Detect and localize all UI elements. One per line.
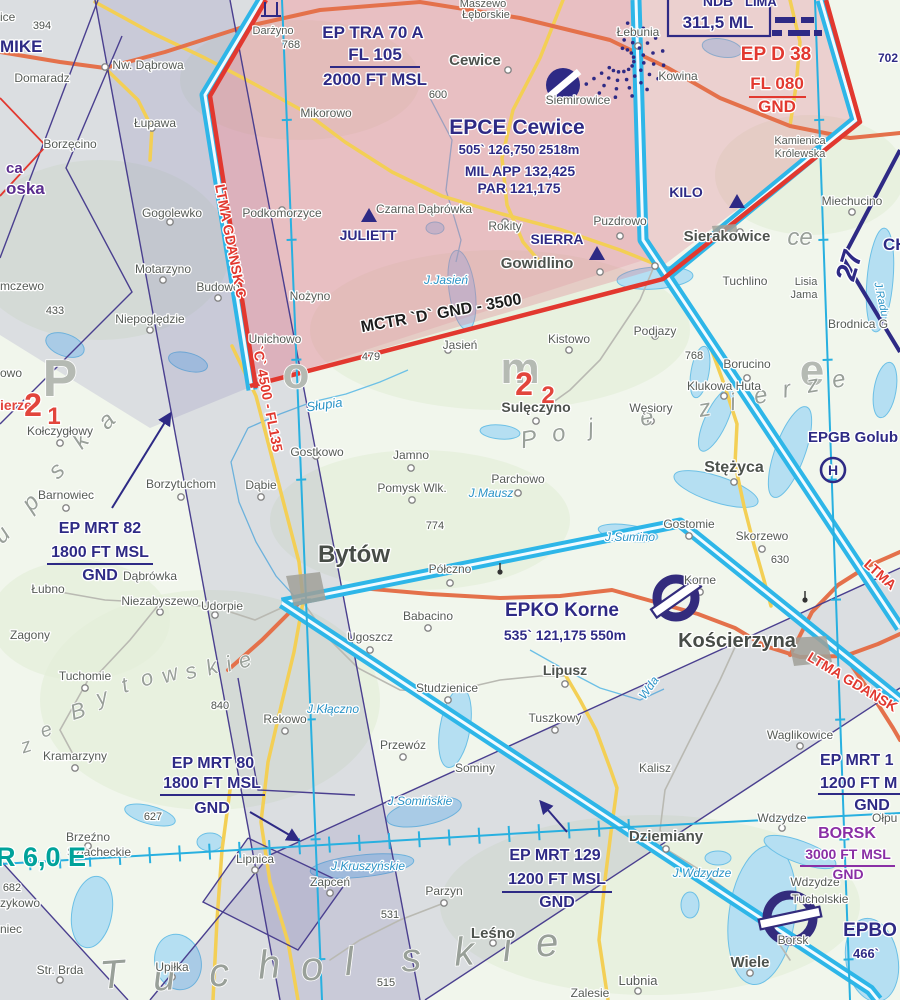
- map-label: j: [583, 414, 597, 442]
- map-label: Półczno: [429, 562, 472, 576]
- map-label: Lipnica: [236, 852, 274, 866]
- morse-dash: [814, 30, 822, 36]
- graticule-tick: [299, 838, 300, 854]
- map-label: Kalisz: [639, 761, 671, 775]
- map-label: Przewóz: [380, 738, 426, 752]
- map-label: EP D 38: [741, 44, 811, 65]
- graticule-tick: [479, 828, 480, 844]
- map-label: Borzytuchom: [146, 477, 216, 491]
- map-label: z: [17, 734, 34, 758]
- map-label: Ugoszcz: [347, 630, 393, 644]
- map-label: 840: [211, 700, 229, 712]
- map-label: o: [550, 419, 568, 448]
- ndb-dot: [630, 51, 634, 55]
- map-label: NDB: [703, 0, 733, 9]
- town-marker: [505, 67, 511, 73]
- map-label: Udorpie: [201, 599, 243, 613]
- map-label: Korne: [684, 573, 716, 587]
- map-label: Parzyn: [425, 884, 462, 898]
- map-label: Kościerzyna: [678, 630, 797, 652]
- town-marker: [409, 497, 415, 503]
- map-label: BORSK: [818, 825, 876, 842]
- ndb-dot: [661, 49, 665, 53]
- map-label: Niezabyszewo: [121, 594, 199, 608]
- ndb-dot: [602, 84, 606, 88]
- map-label: Kistowo: [548, 332, 590, 346]
- ndb-dot: [642, 61, 646, 65]
- map-label: o: [283, 349, 310, 398]
- map-label: s: [43, 457, 71, 485]
- map-label: Pomysk Wlk.: [377, 481, 446, 495]
- ndb-dot: [645, 88, 649, 92]
- map-label: Zapceń: [310, 875, 350, 889]
- map-label: Lipusz: [543, 662, 587, 678]
- map-label: P: [518, 425, 538, 454]
- town-marker: [57, 977, 63, 983]
- map-label: 394: [33, 20, 51, 32]
- ndb-dot: [600, 71, 604, 75]
- ndb-dot: [617, 70, 621, 74]
- map-label: 531: [381, 909, 399, 921]
- map-label: z: [695, 394, 712, 423]
- graticule-tick: [598, 821, 599, 837]
- map-label: Puzdrowo: [593, 214, 647, 228]
- map-label: Dąbie: [245, 478, 277, 492]
- town-marker: [797, 743, 803, 749]
- ndb-dot: [627, 68, 631, 72]
- graticule-tick: [449, 830, 450, 846]
- map-label: Siemirowice: [546, 93, 611, 107]
- ndb-dot: [652, 62, 656, 66]
- map-label: Waglikowice: [767, 728, 834, 742]
- ndb-dot: [646, 41, 650, 45]
- town-marker: [82, 685, 88, 691]
- town-marker: [400, 754, 406, 760]
- map-label: MIKE: [0, 37, 43, 56]
- town-marker: [447, 580, 453, 586]
- map-label: Podjazy: [634, 324, 677, 338]
- town-marker: [63, 505, 69, 511]
- ndb-dot: [662, 63, 666, 67]
- map-label: J.Jasień: [423, 273, 468, 287]
- map-label: 774: [426, 520, 444, 532]
- map-label: 1800 FT MSL: [163, 775, 261, 792]
- town-marker: [849, 209, 855, 215]
- map-label: Dziemiany: [629, 828, 704, 845]
- map-label: 702: [878, 51, 898, 65]
- map-label: Darżyno: [253, 25, 294, 37]
- map-label: FL 080: [750, 74, 804, 93]
- map-label: FL 105: [348, 45, 402, 64]
- graticule-tick: [149, 847, 150, 863]
- ndb-dot: [612, 69, 616, 73]
- town-marker: [552, 727, 558, 733]
- lake: [681, 892, 699, 918]
- map-label: Zalesie: [571, 986, 610, 1000]
- ndb-dot: [628, 86, 632, 90]
- ndb-dot: [607, 76, 611, 80]
- map-label: 466`: [853, 946, 879, 961]
- map-label: SIERRA: [531, 231, 584, 247]
- map-label: niec: [0, 922, 22, 936]
- map-label: mczewo: [0, 279, 44, 293]
- map-label: 433: [46, 305, 64, 317]
- map-label: ce: [787, 224, 812, 251]
- town-marker: [566, 347, 572, 353]
- map-label: oska: [6, 179, 45, 198]
- map-label: Tuchlino: [723, 274, 768, 288]
- map-label: Skorzewo: [736, 529, 789, 543]
- map-label: c: [208, 950, 231, 995]
- town-marker: [635, 988, 641, 994]
- map-label: Domaradz: [14, 71, 69, 85]
- map-label: Lisia: [795, 276, 819, 288]
- town-marker: [367, 647, 373, 653]
- town-marker: [282, 728, 288, 734]
- map-label: Łubno: [31, 582, 65, 596]
- map-label: Bytów: [318, 541, 390, 568]
- map-label: Gowidlino: [501, 255, 574, 272]
- map-label: 1200 FT MSL: [508, 871, 606, 888]
- map-label: Upiłka: [155, 960, 189, 974]
- map-label: Kamienica: [774, 135, 826, 147]
- graticule-tick: [509, 826, 510, 842]
- map-label: 768: [685, 350, 703, 362]
- map-label: 27: [830, 246, 869, 285]
- map-label: 479: [362, 351, 380, 363]
- map-label: EP MRT 1: [820, 752, 894, 769]
- graticule-tick: [389, 833, 390, 849]
- map-label: GND: [539, 894, 575, 911]
- map-label: 600: [429, 89, 447, 101]
- town-marker: [445, 697, 451, 703]
- map-label: Rokity: [488, 219, 521, 233]
- ndb-dot: [631, 41, 635, 45]
- map-label: 2: [24, 387, 42, 423]
- vfr-chart: H PomecePojezierzeupskazeBytowskieTuchol…: [0, 0, 900, 1000]
- ndb-dot: [639, 81, 643, 85]
- graticule-tick: [359, 835, 360, 851]
- map-label: J.Kruszyńskie: [330, 859, 405, 873]
- map-label: Borzęcino: [43, 137, 97, 151]
- town-marker: [663, 846, 669, 852]
- town-marker: [441, 900, 447, 906]
- map-label: 505` 126,750 2518m: [459, 142, 580, 157]
- map-label: Podkomorzyce: [242, 206, 322, 220]
- map-label: 2000 FT MSL: [323, 70, 427, 89]
- map-label: Sominy: [455, 761, 495, 775]
- map-label: u: [0, 520, 16, 549]
- map-label: 535` 121,175 550m: [504, 627, 626, 643]
- map-label: Borucino: [723, 357, 771, 371]
- map-label: Motarzyno: [135, 262, 191, 276]
- map-label: Sierakowice: [684, 228, 771, 245]
- map-label: Królewska: [775, 148, 827, 160]
- town-marker: [779, 825, 785, 831]
- lake: [705, 851, 731, 865]
- map-label: Brodnica G: [828, 317, 888, 331]
- map-label: GND: [758, 97, 796, 116]
- lake: [479, 423, 520, 440]
- map-label: Barnowiec: [38, 488, 94, 502]
- town-marker: [759, 546, 765, 552]
- map-label: GND: [194, 800, 230, 817]
- map-label: KILO: [669, 184, 703, 200]
- ndb-dot: [639, 68, 643, 72]
- map-label: 1800 FT MSL: [51, 544, 149, 561]
- map-label: 2: [515, 366, 533, 402]
- map-label: CH: [883, 235, 900, 254]
- map-label: EP MRT 80: [172, 755, 255, 772]
- town-marker: [408, 465, 414, 471]
- map-label: Rekowo: [263, 712, 307, 726]
- map-label: Tuchomie: [59, 669, 112, 683]
- map-label: Gogolewko: [142, 206, 202, 220]
- town-marker: [102, 64, 108, 70]
- ndb-dot: [621, 46, 625, 50]
- map-label: Węsiory: [629, 401, 672, 415]
- map-label: Stężyca: [704, 459, 764, 476]
- map-label: T: [98, 952, 128, 998]
- ndb-dot: [632, 60, 636, 64]
- map-label: 2: [541, 382, 554, 409]
- map-label: Tuszkowy: [529, 711, 582, 725]
- graticule-tick: [329, 837, 330, 853]
- map-label: 3000 FT MSL: [805, 846, 891, 862]
- town-marker: [721, 393, 727, 399]
- map-label: Jamno: [393, 448, 429, 462]
- ndb-dot: [630, 64, 634, 68]
- graticule-tick: [179, 845, 180, 861]
- map-label: a: [92, 406, 121, 435]
- chart-canvas: H PomecePojezierzeupskazeBytowskieTuchol…: [0, 0, 900, 1000]
- map-label: Gostomie: [663, 517, 715, 531]
- map-label: Jasień: [443, 338, 478, 352]
- map-label: PAR 121,175: [477, 180, 560, 196]
- town-marker: [731, 479, 737, 485]
- map-label: JULIETT: [340, 227, 397, 243]
- ndb-dot: [625, 78, 629, 82]
- map-label: Leśno: [471, 925, 515, 942]
- ndb-dot: [632, 55, 636, 59]
- map-label: owo: [0, 366, 22, 380]
- map-label: EP TRA 70 A: [322, 23, 423, 42]
- map-label: 682: [3, 882, 21, 894]
- map-label: Gostkowo: [290, 445, 344, 459]
- map-label: e: [534, 920, 559, 965]
- map-label: Jama: [791, 289, 819, 301]
- map-label: 768: [282, 39, 300, 51]
- graticule-tick: [569, 822, 570, 838]
- ndb-dot: [633, 74, 637, 78]
- map-label: Wdzydze: [757, 811, 807, 825]
- ndb-dot: [641, 53, 645, 57]
- town-marker: [652, 263, 658, 269]
- ndb-dot: [626, 48, 630, 52]
- map-label: zykowo: [0, 896, 40, 910]
- town-marker: [425, 625, 431, 631]
- map-label: GND: [854, 797, 890, 814]
- map-label: Unichowo: [249, 332, 302, 346]
- map-label: Babacino: [403, 609, 453, 623]
- map-label: Str. Brda: [37, 963, 84, 977]
- ndb-dot: [651, 51, 655, 55]
- town-marker: [215, 295, 221, 301]
- town-marker: [562, 681, 568, 687]
- map-label: GND: [82, 567, 118, 584]
- town-marker: [617, 233, 623, 239]
- map-label: Wiele: [730, 954, 769, 971]
- map-label: Klukowa Huta: [687, 379, 761, 393]
- ndb-dot: [622, 70, 626, 74]
- map-label: Zagony: [10, 628, 50, 642]
- map-label: 630: [771, 554, 789, 566]
- map-label: P: [43, 350, 78, 408]
- town-marker: [258, 494, 264, 500]
- map-label: o: [299, 944, 324, 989]
- map-label: Dąbrówka: [123, 569, 177, 583]
- map-label: r: [780, 375, 794, 403]
- map-label: h: [256, 942, 281, 987]
- graticule-tick: [539, 824, 540, 840]
- map-label: J.Somińskie: [387, 794, 453, 808]
- ndb-dot: [592, 77, 596, 81]
- map-label: e: [830, 365, 848, 394]
- map-label: Kowina: [658, 69, 698, 83]
- map-label: MIL APP 132,425: [465, 163, 575, 179]
- map-label: EP MRT 82: [59, 520, 142, 537]
- map-label: Parchowo: [491, 472, 545, 486]
- town-marker: [327, 890, 333, 896]
- map-label: Cewice: [449, 52, 501, 69]
- map-label: Łebunia: [617, 25, 660, 39]
- map-label: LIMA: [745, 0, 777, 9]
- map-label: 515: [377, 977, 395, 989]
- map-label: 311,5 ML: [683, 13, 754, 32]
- ndb-dot: [607, 66, 611, 70]
- graticule-tick: [209, 844, 210, 860]
- map-label: EPGB Golub: [808, 429, 898, 446]
- map-label: Czarna Dąbrówka: [376, 202, 472, 216]
- map-label: Kramarzyny: [43, 749, 107, 763]
- map-label: Łupawa: [134, 116, 176, 130]
- map-label: Miechucino: [822, 194, 883, 208]
- map-label: 1: [47, 403, 60, 430]
- town-marker: [57, 440, 63, 446]
- ndb-dot: [648, 73, 652, 77]
- map-label: EPBO: [843, 920, 897, 941]
- town-marker: [686, 533, 692, 539]
- pointer-arrow: [112, 414, 170, 508]
- map-label: J.Sumino: [604, 530, 655, 544]
- map-label: Tucholskie: [792, 892, 849, 906]
- ndb-dot: [615, 87, 619, 91]
- town-marker: [515, 490, 521, 496]
- map-label: ca: [6, 160, 23, 177]
- map-label: Łęborskie: [462, 9, 510, 21]
- map-label: J.Kłączno: [306, 702, 359, 716]
- helipad-letter: H: [828, 462, 838, 478]
- map-label: ice: [0, 10, 16, 24]
- town-marker: [252, 867, 258, 873]
- town-marker: [160, 277, 166, 283]
- map-label: Studzienice: [416, 681, 478, 695]
- graticule-tick: [419, 831, 420, 847]
- morse-dash: [801, 17, 814, 23]
- town-marker: [157, 609, 163, 615]
- town-marker: [147, 327, 153, 333]
- map-label: Niepoględzie: [115, 312, 185, 326]
- map-label: 1200 FT M: [820, 775, 897, 792]
- morse-dash: [788, 30, 810, 36]
- town-marker: [178, 494, 184, 500]
- map-label: EPCE Cewice: [449, 116, 584, 139]
- map-label: GND: [832, 866, 863, 882]
- map-label: J.Mausz: [468, 486, 514, 500]
- map-label: Słupia: [305, 395, 343, 415]
- lake: [66, 873, 118, 951]
- map-label: Nw. Dąbrowa: [112, 58, 184, 72]
- ndb-dot: [584, 82, 588, 86]
- map-label: EP MRT 129: [509, 847, 600, 864]
- ndb-dot: [630, 94, 634, 98]
- map-label: s: [400, 935, 423, 980]
- map-label: 627: [144, 811, 162, 823]
- morse-dash: [772, 30, 782, 36]
- town-marker: [597, 269, 603, 275]
- map-label: Mikorowo: [300, 106, 352, 120]
- map-label: Nożyno: [290, 289, 331, 303]
- map-label: Borsk: [778, 933, 810, 947]
- town-marker: [533, 418, 539, 424]
- town-marker: [72, 765, 78, 771]
- map-label: EPKO Korne: [505, 600, 619, 621]
- map-label: J.Wdzydze: [672, 866, 732, 880]
- map-label: R 6,0 E: [0, 842, 86, 872]
- morse-dash: [775, 17, 795, 23]
- ndb-dot: [638, 46, 642, 50]
- map-label: Sulęczyno: [501, 399, 570, 415]
- lake: [869, 361, 900, 420]
- ndb-dot: [616, 78, 620, 82]
- ndb-dot: [614, 95, 618, 99]
- map-label: Lubnia: [618, 973, 658, 988]
